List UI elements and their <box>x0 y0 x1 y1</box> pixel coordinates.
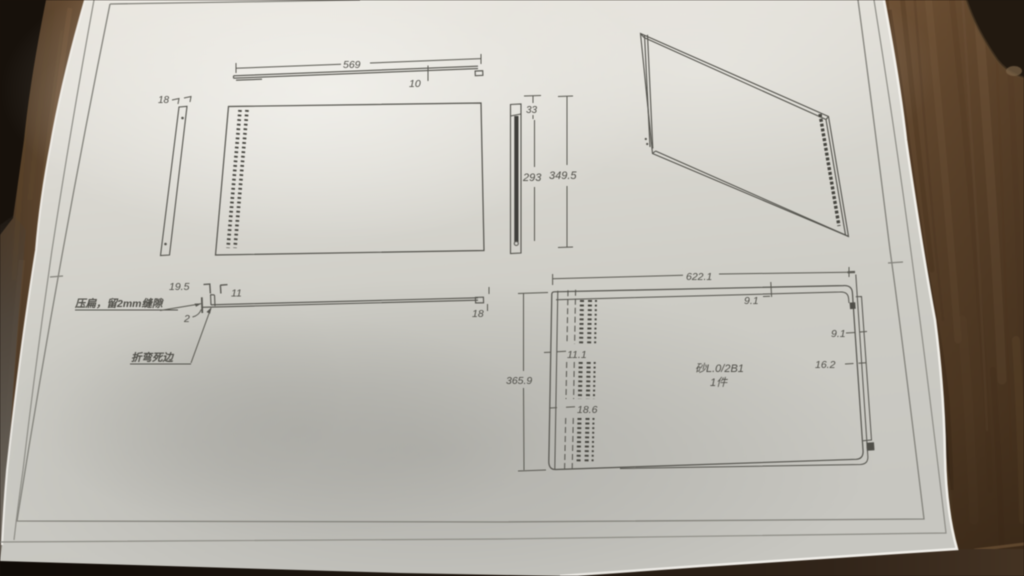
svg-text:折弯死边: 折弯死边 <box>131 351 174 364</box>
svg-text:9.1: 9.1 <box>831 328 846 340</box>
svg-text:19.5: 19.5 <box>169 281 190 293</box>
svg-text:16.2: 16.2 <box>815 359 836 371</box>
svg-text:11.1: 11.1 <box>567 349 587 361</box>
svg-text:622.1: 622.1 <box>686 271 712 283</box>
svg-text:18: 18 <box>472 308 484 320</box>
svg-text:293: 293 <box>522 172 542 184</box>
svg-text:18.6: 18.6 <box>577 404 598 416</box>
svg-text:砂L.0/2B1: 砂L.0/2B1 <box>695 362 744 375</box>
svg-text:2: 2 <box>183 313 190 325</box>
svg-text:11: 11 <box>231 288 242 300</box>
svg-text:365.9: 365.9 <box>506 375 532 387</box>
svg-text:1件: 1件 <box>710 376 728 389</box>
svg-text:10: 10 <box>409 78 421 90</box>
svg-text:569: 569 <box>343 59 361 71</box>
svg-text:349.5: 349.5 <box>549 170 577 182</box>
svg-text:18: 18 <box>158 95 170 106</box>
svg-text:33: 33 <box>526 105 538 116</box>
svg-text:9.1: 9.1 <box>744 295 759 307</box>
svg-text:压扁，留2mm缝隙: 压扁，留2mm缝隙 <box>74 297 164 310</box>
